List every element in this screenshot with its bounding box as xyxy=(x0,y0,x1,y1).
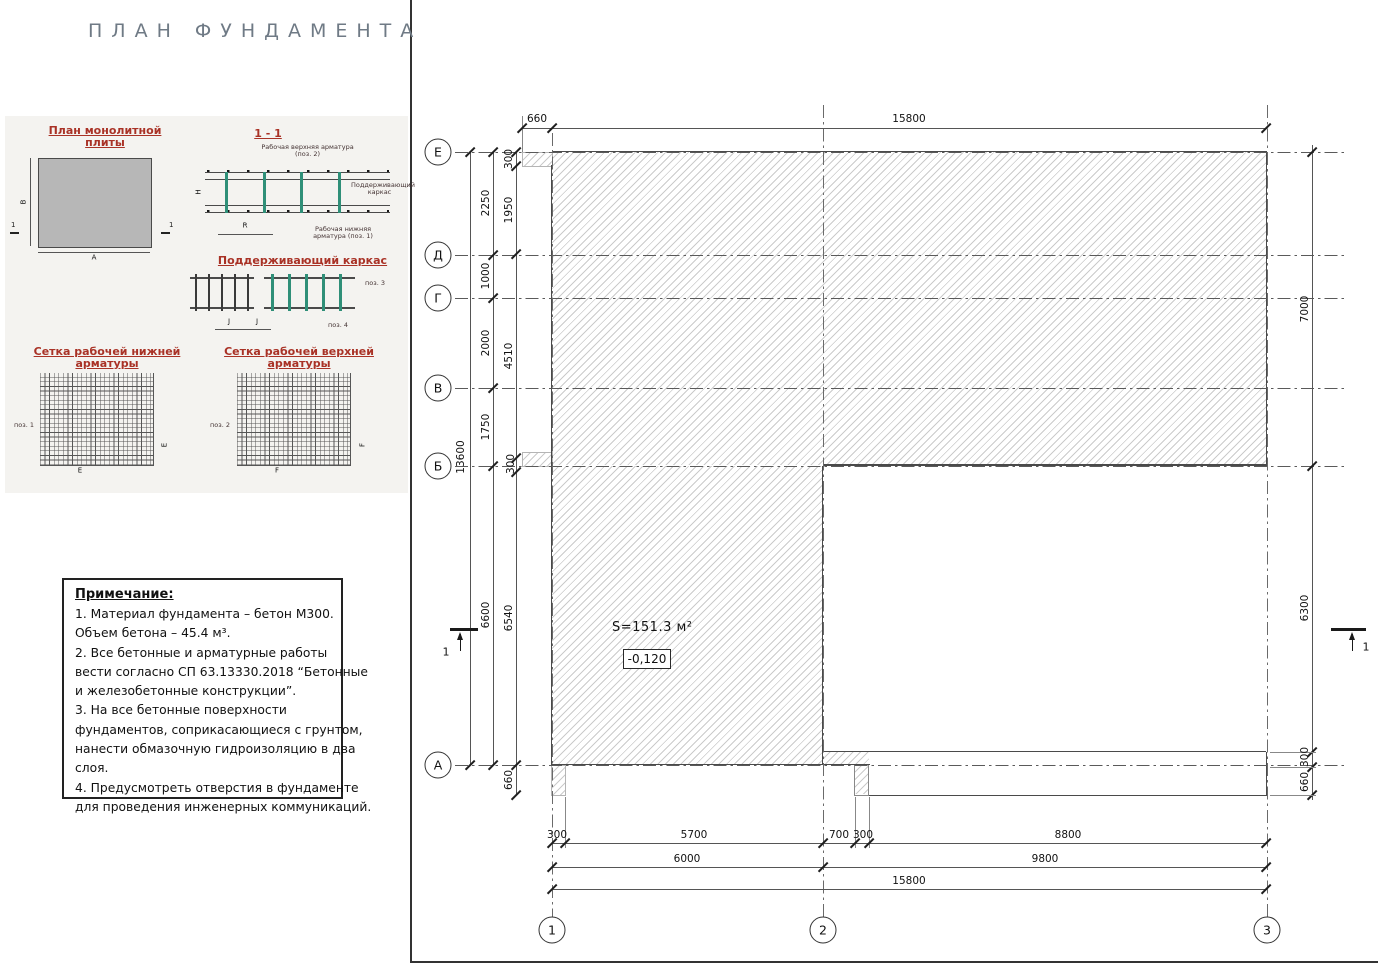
j-dim-line xyxy=(215,329,271,330)
dim-line-left-chain xyxy=(493,152,494,765)
pos1-label: поз. 1 xyxy=(9,422,39,429)
note-line: слоя. xyxy=(75,759,330,778)
section-cut-arrow-left xyxy=(457,632,463,640)
section-cut-label-right: 1 xyxy=(1363,642,1370,653)
frame-post xyxy=(234,274,236,311)
protrusion-bottom-mid xyxy=(855,765,868,794)
frame-post xyxy=(247,274,249,311)
dim-right-6300: 6300 xyxy=(1300,595,1311,622)
inset-section-heading: 1 - 1 xyxy=(238,128,298,140)
slab-plan-rectangle xyxy=(38,158,152,248)
notes-title: Примечание: xyxy=(75,587,330,602)
dim-bottom-9800: 9800 xyxy=(1032,854,1059,865)
slab-area-label: S=151.3 м² xyxy=(612,620,693,635)
note-line: и железобетонные конструкции”. xyxy=(75,682,330,701)
detail-inset-panel: План монолитной плиты B A 1 1 1 - 1 Рабо… xyxy=(5,116,408,493)
footing-step-right xyxy=(868,765,869,795)
section-cut-arrow-right xyxy=(1349,632,1355,640)
slab-cut-mark-right xyxy=(161,232,170,234)
dim-left-1750: 1750 xyxy=(481,414,492,441)
dim-top-660: 660 xyxy=(527,114,547,125)
dim-left-2000: 2000 xyxy=(481,330,492,357)
note-line: 1. Материал фундамента – бетон М300. xyxy=(75,605,330,624)
row-axis-bubble-V: В xyxy=(425,375,452,402)
inset-plan-heading: План монолитной плиты xyxy=(30,125,180,149)
sheet-divider-line xyxy=(410,0,412,962)
dim-bottom-300a: 300 xyxy=(547,830,567,841)
ext-line xyxy=(522,116,523,152)
section-bar-line xyxy=(205,179,390,180)
slab-b-dim-label: B xyxy=(21,200,28,205)
dim-inner-300a: 300 xyxy=(504,149,515,169)
footing-step-bottom xyxy=(854,795,869,796)
elevation-mark: -0,120 xyxy=(623,649,671,669)
slab-b-dim-line xyxy=(30,158,31,246)
note-line: для проведения инженерных коммуникаций. xyxy=(75,798,330,817)
dim-right-7000: 7000 xyxy=(1300,296,1311,323)
frame-post-green xyxy=(305,274,308,311)
frame-break-gap xyxy=(254,270,264,315)
dim-inner-4510: 4510 xyxy=(504,343,515,370)
dim-bottom-8800: 8800 xyxy=(1055,830,1082,841)
dim-line-bottom-3 xyxy=(552,889,1267,890)
dim-left-2250: 2250 xyxy=(481,190,492,217)
e-dim-label-vert: E xyxy=(162,443,169,447)
axis-line-B xyxy=(455,466,1345,467)
frame-post-green xyxy=(322,274,325,311)
bottom-rebar-label: Рабочая нижняя арматура (поз. 1) xyxy=(298,226,388,241)
pos3-label: поз. 3 xyxy=(357,280,393,287)
frame-post-green xyxy=(339,274,342,311)
drawing-sheet: ПЛАН ФУНДАМЕНТА План монолитной плиты B … xyxy=(0,0,1378,968)
section-cut-bar-right xyxy=(1331,628,1366,631)
drawing-title: ПЛАН ФУНДАМЕНТА xyxy=(88,20,422,42)
protrusion-bottom-left xyxy=(551,765,566,796)
support-post xyxy=(338,172,341,213)
protrusion-top-left xyxy=(522,152,553,167)
dim-right-660: 660 xyxy=(1300,772,1311,792)
axis-line-3 xyxy=(1267,105,1268,917)
dim-bottom-300b: 300 xyxy=(853,830,873,841)
dim-bottom-15800: 15800 xyxy=(892,876,925,887)
frame-post xyxy=(195,274,197,311)
dim-inner-300b: 300 xyxy=(506,454,517,474)
row-axis-bubble-B: Б xyxy=(425,453,452,480)
dim-line-bottom-1 xyxy=(552,843,1267,844)
footing-strip-bottom xyxy=(869,795,1266,796)
dim-bottom-700: 700 xyxy=(829,830,849,841)
slab-a-dim-label: A xyxy=(92,255,97,262)
footing-step-left xyxy=(854,765,855,795)
slab-hatch-lower-left xyxy=(552,466,822,764)
ext-line xyxy=(1270,795,1316,796)
support-post xyxy=(300,172,303,213)
note-line: нанести обмазочную гидроизоляцию в два xyxy=(75,740,330,759)
e-dim-label: E xyxy=(78,468,82,475)
note-line: фундаментов, соприкасающиеся с грунтом, xyxy=(75,721,330,740)
f-dim-label: F xyxy=(275,468,279,475)
inset-mesh-bottom-heading: Сетка рабочей нижней арматуры xyxy=(12,346,202,370)
dim-line-left-overall xyxy=(470,152,471,765)
section-cut-label-left: 1 xyxy=(443,647,450,658)
dim-left-1000: 1000 xyxy=(481,263,492,290)
notes-lines: 1. Материал фундамента – бетон М300.Объе… xyxy=(75,605,330,817)
frame-post-green xyxy=(288,274,291,311)
support-post xyxy=(225,172,228,213)
r-dim-line xyxy=(218,234,273,235)
row-axis-bubble-G: Г xyxy=(425,285,452,312)
h-dim-label: H xyxy=(196,189,203,194)
slab-hatch-upper-band xyxy=(552,152,1266,465)
axis-line-D xyxy=(455,255,1345,256)
section-bar-line xyxy=(205,212,390,213)
top-rebar-mesh xyxy=(237,373,351,466)
inset-frame-heading: Поддерживающий каркас xyxy=(215,255,390,267)
note-line: Объем бетона – 45.4 м³. xyxy=(75,624,330,643)
support-post xyxy=(263,172,266,213)
pos2-label: поз. 2 xyxy=(205,422,235,429)
sheet-bottom-border xyxy=(410,961,1378,963)
dim-bottom-5700: 5700 xyxy=(681,830,708,841)
row-axis-bubble-A: А xyxy=(425,752,452,779)
frame-post-green xyxy=(271,274,274,311)
f-dim-label-vert: F xyxy=(360,443,367,447)
slab-cut-label-right: 1 xyxy=(169,222,173,229)
dim-right-300: 300 xyxy=(1300,747,1311,767)
axis-line-V xyxy=(455,388,1345,389)
top-rebar-label: Рабочая верхняя арматура (поз. 2) xyxy=(255,144,360,159)
axis-line-E xyxy=(455,152,1345,153)
note-line: 4. Предусмотреть отверстия в фундаменте xyxy=(75,779,330,798)
col-axis-bubble-2: 2 xyxy=(810,917,837,944)
dim-bottom-6000: 6000 xyxy=(674,854,701,865)
slab-cut-mark-left xyxy=(10,232,19,234)
note-line: 3. На все бетонные поверхности xyxy=(75,701,330,720)
note-line: вести согласно СП 63.13330.2018 “Бетонны… xyxy=(75,663,330,682)
axis-line-1 xyxy=(552,133,553,917)
axis-line-G xyxy=(455,298,1345,299)
col-axis-bubble-3: 3 xyxy=(1254,917,1281,944)
support-frame-label: Поддерживающий каркас xyxy=(351,182,408,197)
dim-inner-660: 660 xyxy=(504,770,515,790)
dim-line-top xyxy=(522,128,1267,129)
slab-hatch-step xyxy=(823,752,869,764)
dim-inner-1950: 1950 xyxy=(504,197,515,224)
dim-line-bottom-2 xyxy=(552,867,1267,868)
footing-strip-top xyxy=(823,751,1266,752)
rebar-dots-top xyxy=(207,170,389,173)
row-axis-bubble-D: Д xyxy=(425,242,452,269)
row-axis-bubble-E: Е xyxy=(425,139,452,166)
section-cut-bar-left xyxy=(450,628,478,631)
frame-post xyxy=(221,274,223,311)
frame-post xyxy=(208,274,210,311)
col-axis-bubble-1: 1 xyxy=(539,917,566,944)
axis-line-A xyxy=(455,765,1345,766)
dim-line-right xyxy=(1312,145,1313,800)
bottom-rebar-mesh xyxy=(40,373,154,466)
section-bar-line xyxy=(205,172,390,173)
dim-inner-6540: 6540 xyxy=(504,605,515,632)
pos4-label: поз. 4 xyxy=(321,322,355,329)
dim-left-6600: 6600 xyxy=(481,602,492,629)
rebar-dots-bottom xyxy=(207,210,389,213)
inset-mesh-top-heading: Сетка рабочей верхней арматуры xyxy=(203,346,395,370)
slab-cut-label-left: 1 xyxy=(11,222,15,229)
notes-box: Примечание: 1. Материал фундамента – бет… xyxy=(62,578,343,799)
dim-left-13600: 13600 xyxy=(456,440,467,473)
dim-top-15800: 15800 xyxy=(892,114,925,125)
section-bar-line xyxy=(205,205,390,206)
j-dim-label: J xyxy=(228,319,230,326)
axis-line-2 xyxy=(823,105,824,917)
j-dim-label: J xyxy=(256,319,258,326)
note-line: 2. Все бетонные и арматурные работы xyxy=(75,644,330,663)
r-dim-label: R xyxy=(243,223,248,230)
